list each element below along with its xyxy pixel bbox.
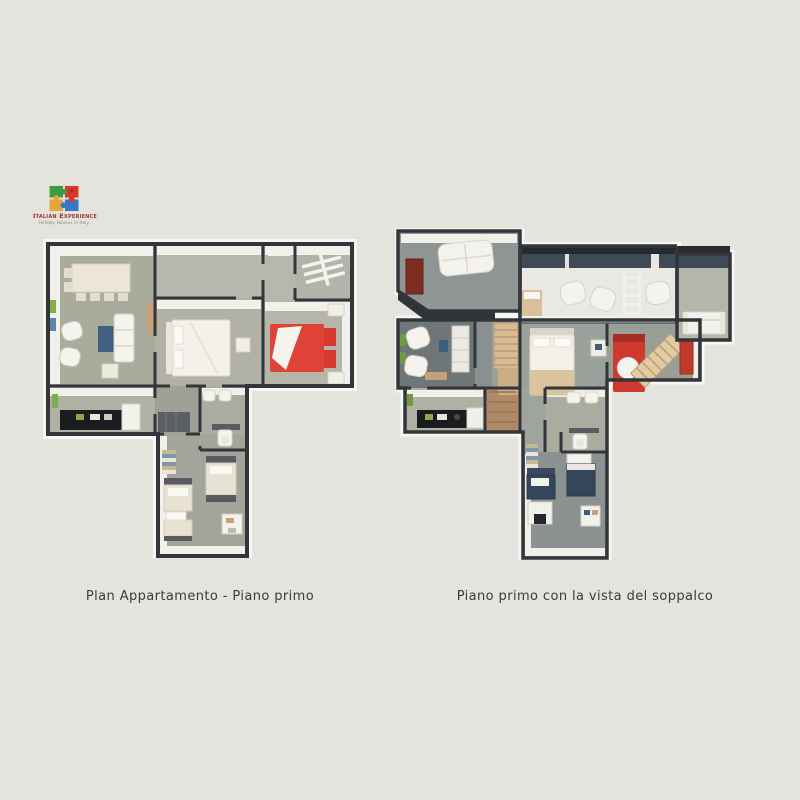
cabinet: [102, 364, 118, 378]
sofa: [114, 314, 134, 362]
wall-art: [50, 300, 56, 313]
right-room: [677, 246, 730, 340]
bench: [425, 372, 447, 380]
armchair: [403, 354, 428, 378]
wall-art: [407, 394, 413, 406]
blue-bag: [439, 340, 448, 352]
floorplan-left: [40, 238, 360, 558]
wall-art: [400, 334, 406, 346]
sink: [585, 392, 598, 403]
brand-logo: Italian Experience Holiday Houses in Ita…: [33, 185, 95, 225]
striped-rug: [162, 450, 176, 474]
nightstand: [328, 372, 344, 384]
mattress: [645, 280, 672, 305]
single-bed-navy: [527, 468, 555, 499]
page-background: Italian Experience Holiday Houses in Ita…: [0, 0, 800, 800]
sofa-bed: [437, 239, 494, 276]
striped-rug: [526, 444, 538, 468]
wardrobe-red: [406, 259, 423, 294]
sink: [203, 390, 215, 401]
brand-name: Italian Experience: [33, 213, 95, 220]
hall-closet: [158, 412, 190, 432]
single-bed-navy: [567, 464, 595, 496]
floorplan-left-svg: [40, 238, 360, 558]
caption-right: Piano primo con la vista del soppalco: [420, 589, 750, 604]
shelf-unit: [452, 326, 469, 372]
nightstand: [328, 304, 344, 316]
mezzanine: [520, 246, 677, 318]
dining-table: [72, 264, 130, 292]
caption-left: Plan Appartamento - Piano primo: [36, 589, 364, 604]
fridge: [467, 408, 483, 428]
brand-tagline: Holiday Houses in Italy: [33, 220, 95, 225]
wardrobe-red: [680, 340, 693, 374]
angled-room: [398, 231, 520, 311]
double-bed-white: [166, 320, 230, 376]
toilet: [573, 434, 587, 449]
single-bed: [206, 456, 236, 502]
floorplan-right-svg: [395, 228, 735, 560]
wall-art: [50, 318, 56, 331]
toilet: [218, 430, 232, 446]
sofa: [683, 312, 725, 334]
fridge: [122, 404, 140, 430]
puzzle-logo-icon: [46, 185, 82, 212]
floorplan-right: [395, 228, 735, 560]
radiator: [268, 248, 290, 256]
nightstand: [236, 338, 250, 352]
desk: [222, 514, 242, 534]
desk: [581, 506, 600, 526]
wall-art: [52, 394, 58, 408]
desk: [528, 502, 552, 524]
sink: [219, 390, 231, 401]
single-bed: [164, 478, 192, 511]
sink: [567, 392, 580, 403]
